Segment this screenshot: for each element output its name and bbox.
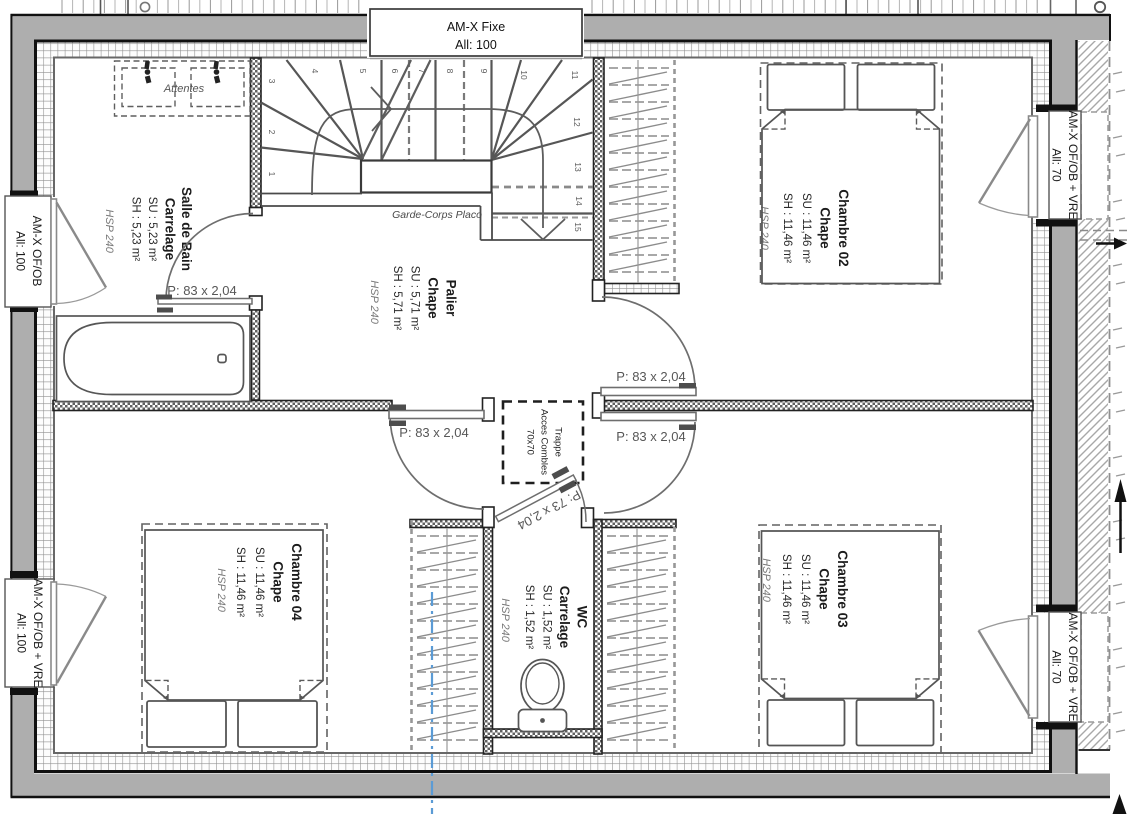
- svg-text:AM-X OF/OB + VRE: AM-X OF/OB + VRE: [1066, 612, 1080, 721]
- svg-text:All: 70: All: 70: [1050, 650, 1064, 684]
- svg-text:SH : 11,46 m²: SH : 11,46 m²: [234, 547, 246, 617]
- svg-text:SU : 1,52 m²: SU : 1,52 m²: [540, 585, 552, 650]
- svg-text:Attentes: Attentes: [163, 83, 205, 95]
- svg-text:SU : 11,46 m²: SU : 11,46 m²: [253, 547, 265, 617]
- svg-text:Salle de Bain: Salle de Bain: [179, 187, 194, 271]
- svg-text:12: 12: [572, 117, 582, 127]
- svg-text:Chape: Chape: [817, 568, 832, 610]
- svg-text:Acces Combles: Acces Combles: [538, 409, 549, 475]
- svg-text:3: 3: [267, 79, 277, 84]
- svg-text:Chambre 02: Chambre 02: [836, 189, 851, 266]
- svg-text:SH : 5,71 m²: SH : 5,71 m²: [391, 266, 403, 331]
- svg-text:Chambre 04: Chambre 04: [289, 543, 304, 621]
- svg-text:Palier: Palier: [443, 280, 458, 318]
- svg-text:SU : 5,71 m²: SU : 5,71 m²: [409, 266, 421, 331]
- svg-text:AM-X Fixe: AM-X Fixe: [447, 20, 505, 34]
- svg-text:AM-X OF/OB + VRE: AM-X OF/OB + VRE: [1066, 110, 1080, 219]
- svg-text:AM-X OF/OB: AM-X OF/OB: [30, 216, 44, 287]
- svg-text:SU : 5,23 m²: SU : 5,23 m²: [146, 197, 158, 262]
- svg-text:Chape: Chape: [426, 277, 441, 319]
- svg-text:2: 2: [267, 130, 277, 135]
- svg-text:1: 1: [267, 172, 277, 177]
- svg-text:P: 83 x 2,04: P: 83 x 2,04: [616, 429, 685, 444]
- svg-text:SH : 11,46 m²: SH : 11,46 m²: [781, 193, 793, 263]
- svg-text:13: 13: [573, 162, 583, 172]
- svg-text:P: 83 x 2,04: P: 83 x 2,04: [399, 425, 468, 440]
- svg-text:HSP 240: HSP 240: [215, 568, 227, 613]
- svg-text:All: 100: All: 100: [15, 613, 29, 653]
- svg-text:Carrelage: Carrelage: [557, 586, 572, 649]
- svg-text:Carrelage: Carrelage: [162, 198, 177, 261]
- svg-text:7: 7: [417, 69, 427, 74]
- svg-text:6: 6: [390, 69, 400, 74]
- svg-text:All: 70: All: 70: [1050, 148, 1064, 182]
- svg-text:SU : 11,46 m²: SU : 11,46 m²: [799, 554, 811, 624]
- svg-text:AM-X OF/OB + VRE: AM-X OF/OB + VRE: [31, 578, 45, 687]
- svg-text:All: 100: All: 100: [455, 38, 497, 52]
- svg-text:HSP 240: HSP 240: [499, 598, 511, 643]
- svg-text:P: 83 x 2,04: P: 83 x 2,04: [167, 283, 236, 298]
- svg-text:WC: WC: [575, 606, 590, 629]
- svg-text:11: 11: [570, 71, 580, 80]
- svg-text:14: 14: [574, 196, 584, 206]
- svg-text:HSP 240: HSP 240: [368, 280, 380, 325]
- svg-text:Garde-Corps Placo: Garde-Corps Placo: [392, 209, 482, 221]
- svg-text:SH : 1,52 m²: SH : 1,52 m²: [523, 585, 535, 650]
- svg-text:5: 5: [358, 69, 368, 74]
- svg-text:15: 15: [573, 222, 583, 232]
- svg-text:Trappe: Trappe: [552, 427, 563, 457]
- svg-text:4: 4: [310, 69, 320, 74]
- svg-text:Chape: Chape: [818, 207, 833, 249]
- svg-text:HSP 240: HSP 240: [103, 209, 115, 254]
- svg-text:All: 100: All: 100: [14, 231, 28, 271]
- svg-text:9: 9: [479, 69, 489, 74]
- svg-text:8: 8: [445, 69, 455, 74]
- svg-text:SU : 11,46 m²: SU : 11,46 m²: [800, 193, 812, 263]
- svg-text:Chape: Chape: [271, 561, 286, 603]
- svg-text:P: 83 x 2,04: P: 83 x 2,04: [616, 369, 685, 384]
- svg-text:10: 10: [519, 70, 529, 80]
- svg-text:SH : 11,46 m²: SH : 11,46 m²: [780, 554, 792, 624]
- svg-text:SH : 5,23 m²: SH : 5,23 m²: [129, 197, 141, 262]
- svg-text:Chambre 03: Chambre 03: [835, 550, 850, 628]
- svg-text:70x70: 70x70: [524, 429, 535, 455]
